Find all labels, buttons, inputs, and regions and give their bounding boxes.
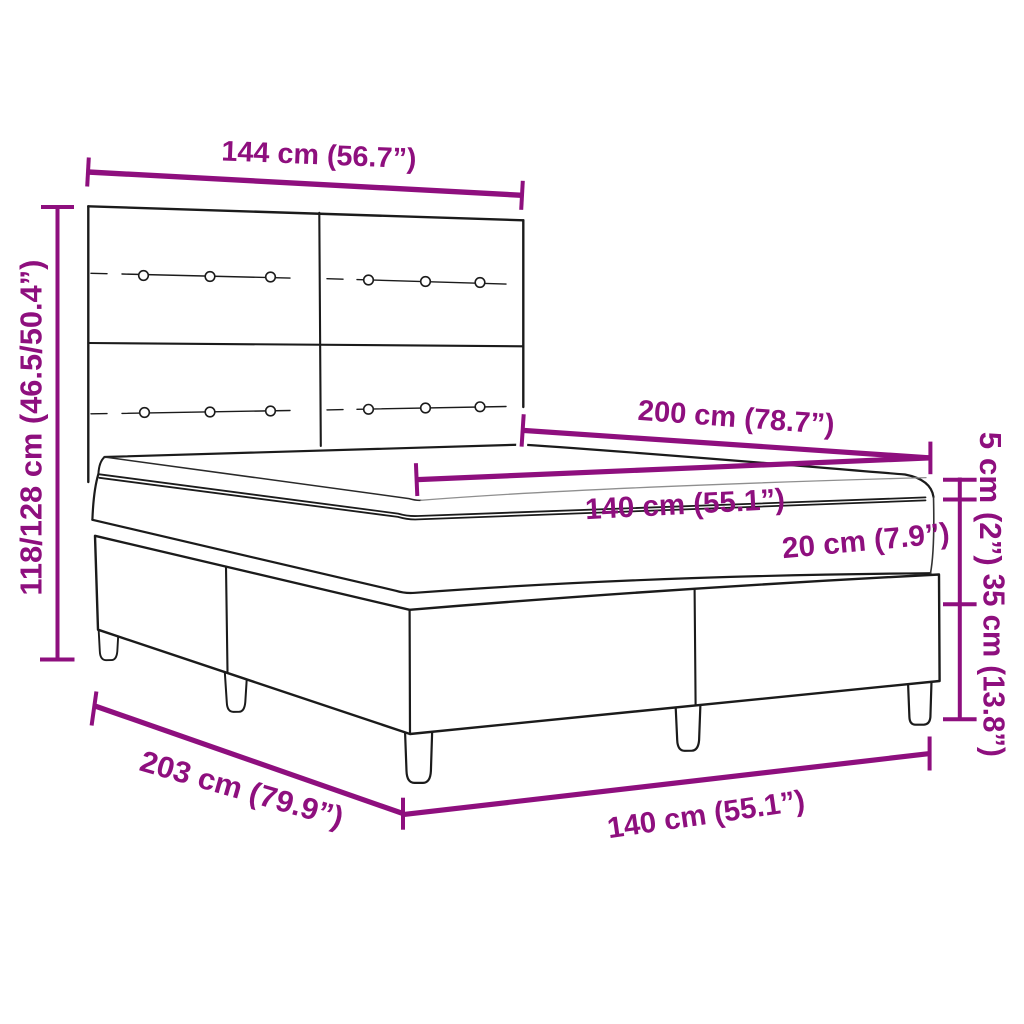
svg-text:5 cm (2”): 5 cm (2”) (973, 432, 1008, 566)
svg-text:35 cm (13.8”): 35 cm (13.8”) (977, 574, 1012, 757)
svg-text:118/128 cm (46.5/50.4”): 118/128 cm (46.5/50.4”) (14, 260, 49, 596)
